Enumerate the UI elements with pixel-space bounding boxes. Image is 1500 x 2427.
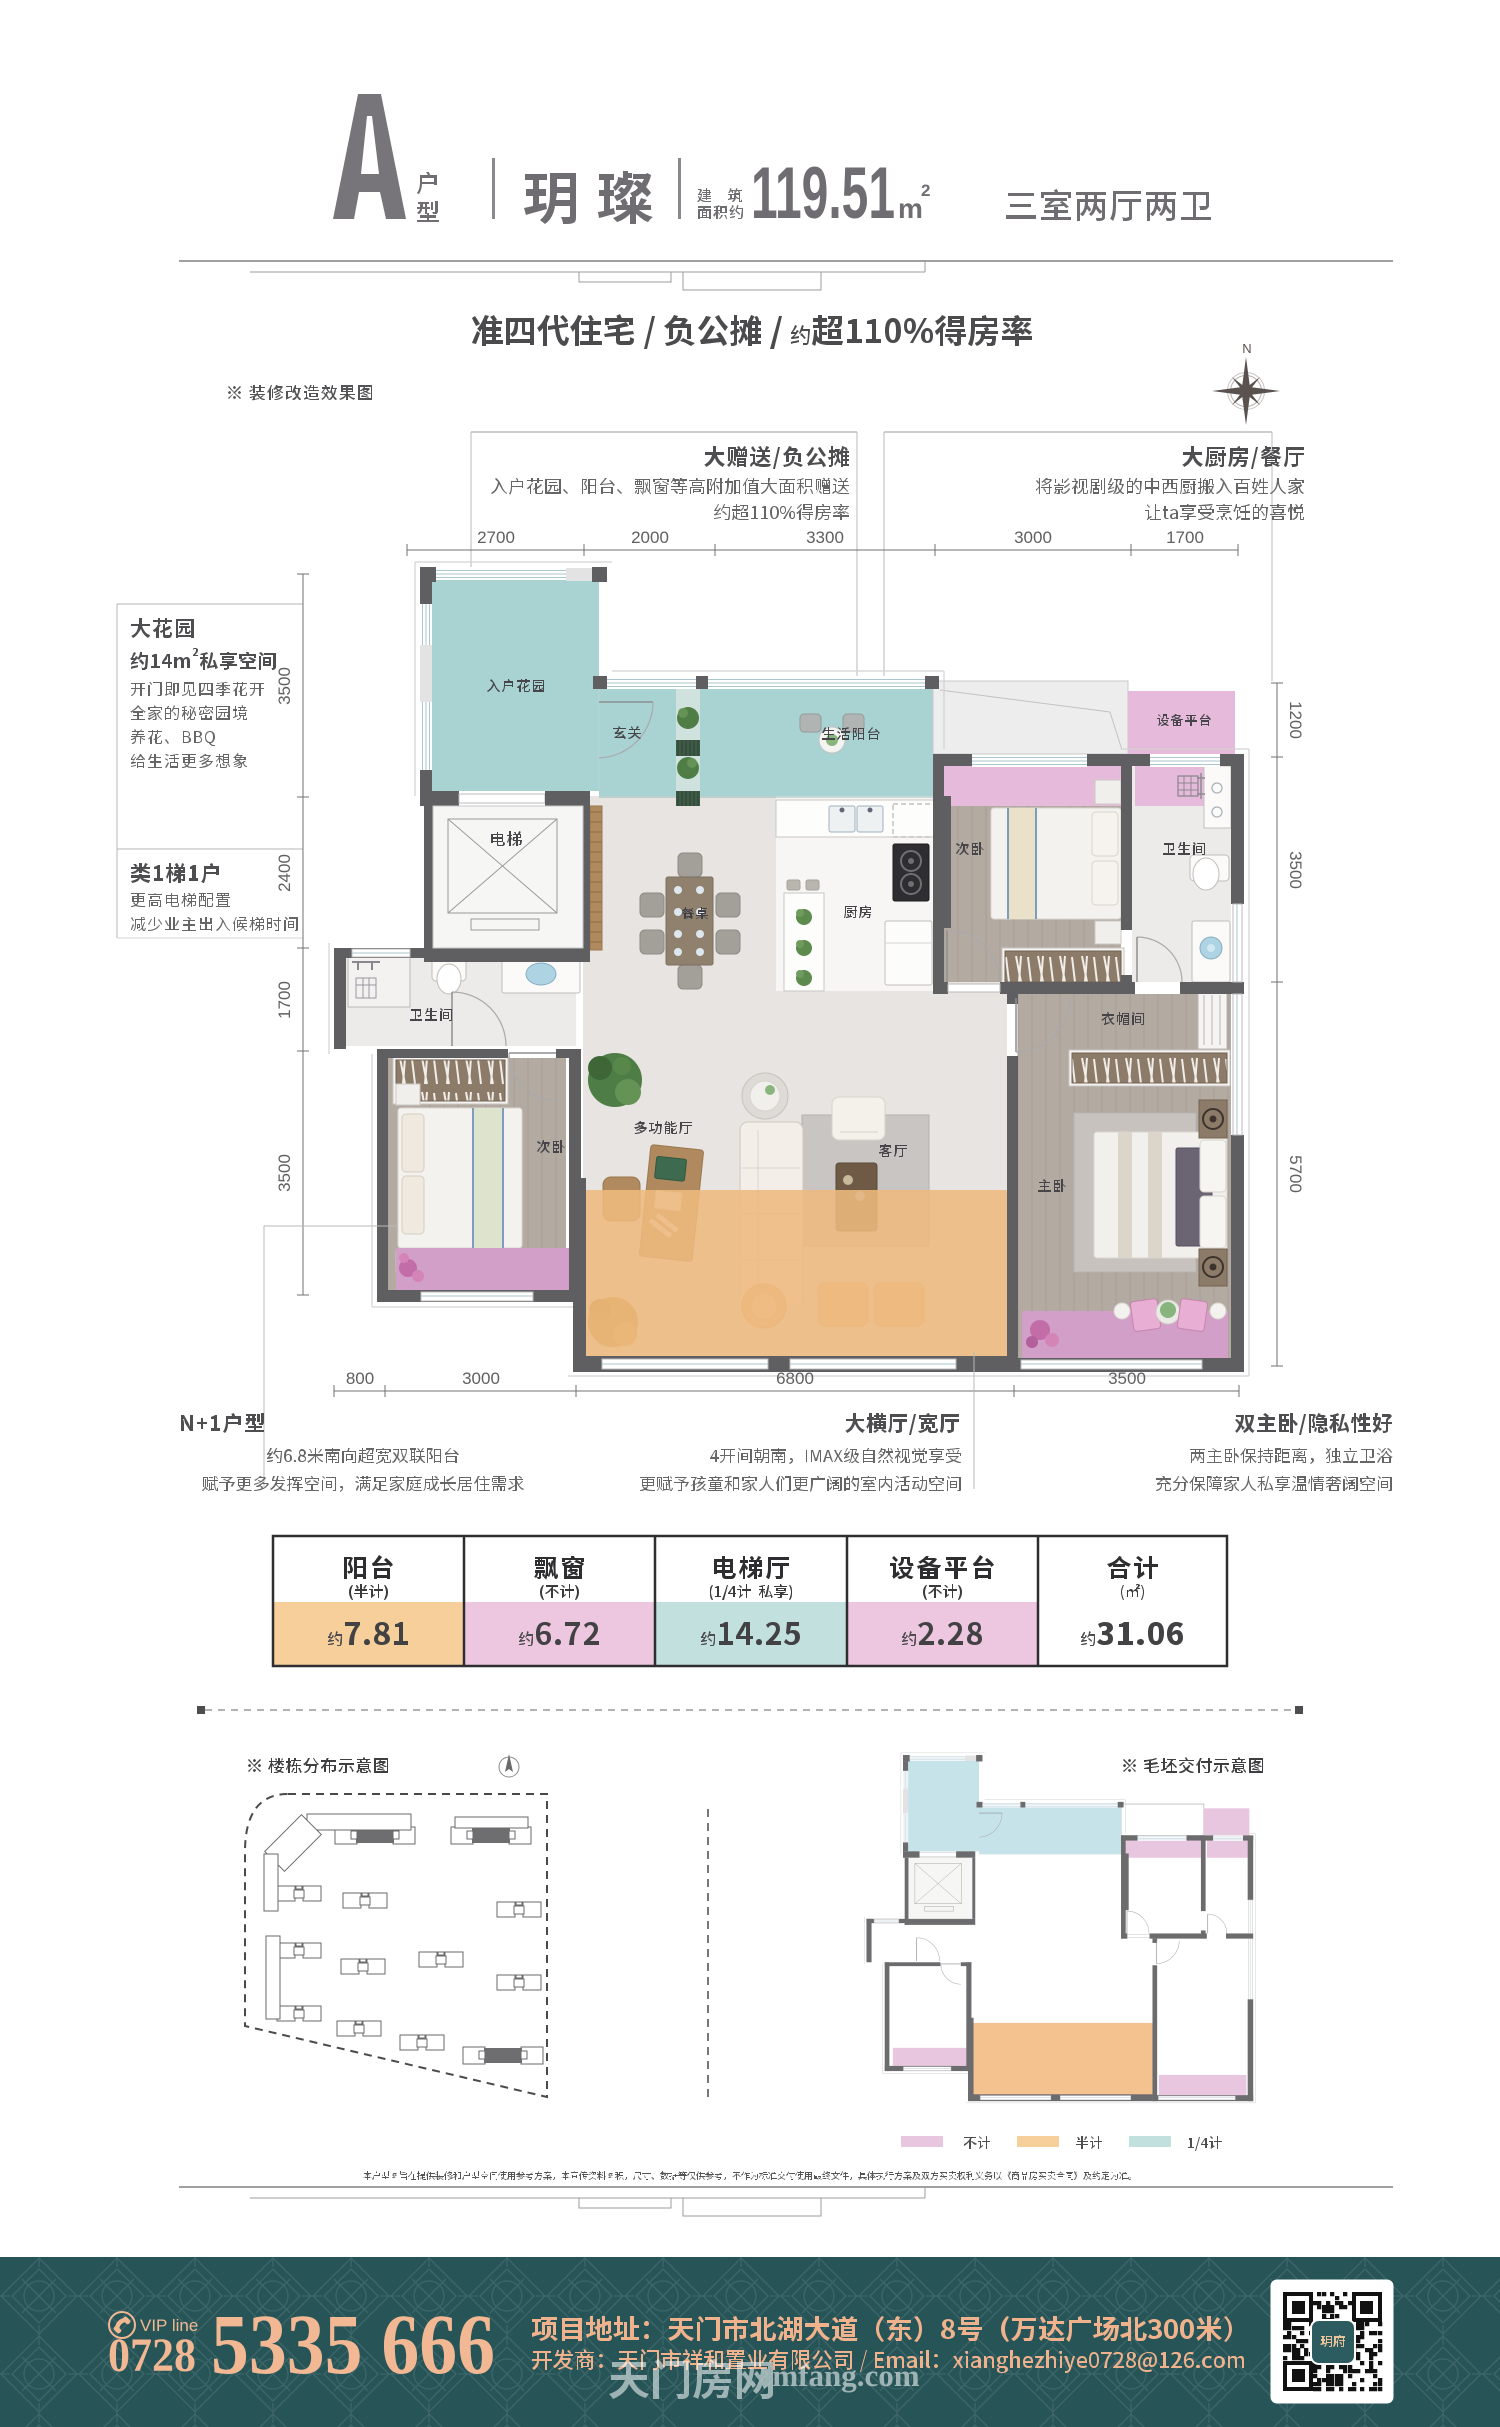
svg-text:3500: 3500 <box>1286 851 1305 889</box>
svg-text:2400: 2400 <box>275 854 294 892</box>
svg-text:0728: 0728 <box>108 2329 196 2382</box>
svg-text:1200: 1200 <box>1286 701 1305 739</box>
svg-text:3000: 3000 <box>1014 528 1052 547</box>
svg-text:2: 2 <box>921 181 930 200</box>
svg-text:6800: 6800 <box>776 1369 814 1388</box>
svg-text:3000: 3000 <box>462 1369 500 1388</box>
svg-text:119.51: 119.51 <box>751 153 895 234</box>
svg-text:2700: 2700 <box>477 528 515 547</box>
svg-text:3500: 3500 <box>275 667 294 705</box>
svg-text:3300: 3300 <box>806 528 844 547</box>
svg-text:3500: 3500 <box>275 1154 294 1192</box>
svg-text:1700: 1700 <box>275 981 294 1019</box>
svg-text:N: N <box>1242 341 1251 356</box>
svg-text:3500: 3500 <box>1108 1369 1146 1388</box>
svg-text:1700: 1700 <box>1166 528 1204 547</box>
svg-text:5700: 5700 <box>1286 1155 1305 1193</box>
svg-text:m: m <box>898 193 923 224</box>
svg-text:5335 666: 5335 666 <box>211 2296 495 2392</box>
svg-text:tmfang.com: tmfang.com <box>762 2358 920 2393</box>
svg-text:2000: 2000 <box>631 528 669 547</box>
svg-text:800: 800 <box>346 1369 374 1388</box>
